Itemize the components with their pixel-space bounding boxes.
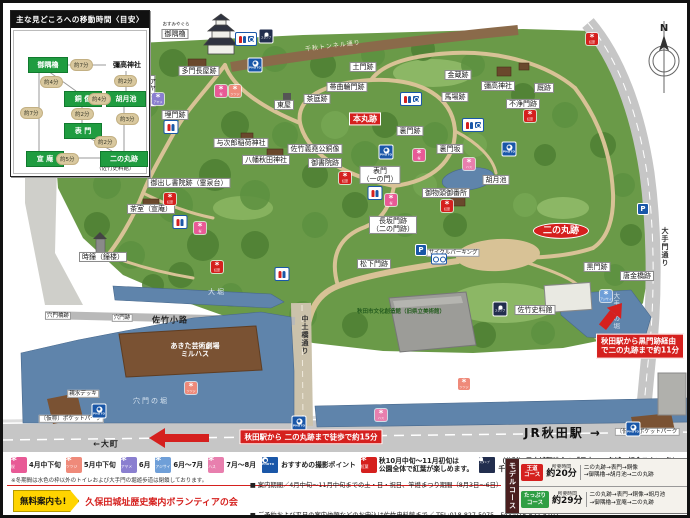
flow-time-label: 約2分 xyxy=(114,75,137,87)
flow-node-osumiyagura: 御隅櫓 xyxy=(28,57,68,73)
tsutsuji-icon: *ツツジ xyxy=(66,457,82,473)
flow-time-label: 約2分 xyxy=(94,136,117,148)
course-time: 所要時間約20分 xyxy=(546,465,581,480)
guide-info-bar: 無料案内も! 久保田城址歴史案内ボランティアの会 ■ 案内期間／4月中旬～11月… xyxy=(13,489,501,513)
flow-time-label: 約7分 xyxy=(20,107,43,119)
flower-caption: ハス xyxy=(208,465,224,469)
flow-node-ninomaru-ato: 二の丸跡 xyxy=(100,151,148,167)
flow-time-label: 約4分 xyxy=(40,76,63,88)
model-course-side-label: モデルコース xyxy=(506,459,519,513)
flow-node-iyataka-jinja: 彌高神社 xyxy=(106,59,148,71)
course-badge: 王道 コース xyxy=(521,464,543,481)
bloom-period-label: 6月 xyxy=(139,461,151,469)
travel-time-legend: 主な見どころへの移動時間〈目安〉 （佐竹史料館） 御隅櫓彌高神社銅 像胡月池表 … xyxy=(10,10,150,177)
bloom-legend-item: *ツツジ5月中下旬 xyxy=(66,457,116,473)
winter-note: ※冬期間は水色の枠以外のトイレおよび大手門の堀遊歩道は閉鎖しております。 xyxy=(11,476,207,484)
course-time-value: 約20分 xyxy=(546,470,577,480)
model-course-rows: 王道 コース所要時間約20分二の丸跡→表門→銅像 →御隅櫓→胡月池→二の丸跡たっ… xyxy=(519,459,690,513)
ajisai-icon: *アジサイ xyxy=(155,457,171,473)
flow-time-label: 約2分 xyxy=(71,108,94,120)
bloom-period-label: 6月～7月 xyxy=(173,461,203,469)
volunteer-org-name: 久保田城址歴史案内ボランティアの会 xyxy=(85,495,237,508)
flower-caption: 桜 xyxy=(11,465,27,469)
model-course-box: モデルコース 王道 コース所要時間約20分二の丸跡→表門→銅像 →御隅櫓→胡月池… xyxy=(505,458,690,514)
flow-node-kogetsu-ike: 胡月池 xyxy=(106,91,146,107)
flow-time-label: 約5分 xyxy=(56,153,79,165)
travel-time-title: 主な見どころへの移動時間〈目安〉 xyxy=(11,11,149,28)
course-route: 二の丸跡→表門→銅像 →御隅櫓→胡月池→二の丸跡 xyxy=(584,465,654,480)
bloom-legend-item: *桜4月中下旬 xyxy=(11,457,61,473)
sakura-icon: *桜 xyxy=(11,457,27,473)
course-time-value: 約29分 xyxy=(552,497,583,507)
ayame-icon: *アヤメ xyxy=(121,457,137,473)
flow-time-label: 約4分 xyxy=(88,93,111,105)
flow-time-label: 約3分 xyxy=(116,113,139,125)
bloom-legend-item: *アヤメ6月 xyxy=(121,457,151,473)
course-time: 所要時間約29分 xyxy=(552,492,587,507)
course-row: 王道 コース所要時間約20分二の丸跡→表門→銅像 →御隅櫓→胡月池→二の丸跡 xyxy=(519,459,690,487)
free-guide-badge: 無料案内も! xyxy=(13,490,79,512)
course-route: 二の丸跡→表門→銅像→胡月池 →御隅櫓→宣庵→二の丸跡 xyxy=(590,492,666,507)
bloom-period-label: 4月中下旬 xyxy=(29,461,61,469)
flower-caption: アジサイ xyxy=(155,465,171,469)
compass-icon: N xyxy=(639,19,689,97)
course-row: たっぷり コース所要時間約29分二の丸跡→表門→銅像→胡月池 →御隅櫓→宣庵→二… xyxy=(519,487,690,514)
bloom-legend-item: *アジサイ6月～7月 xyxy=(155,457,203,473)
map-area: おすみやぐら御隅櫓多門長屋跡アヤメ園埋門跡土門跡帯曲輪門跡金蔵跡彌高神社馬場跡厩… xyxy=(3,3,690,458)
course-badge: たっぷり コース xyxy=(521,491,549,508)
park-map-sheet: おすみやぐら御隅櫓多門長屋跡アヤメ園埋門跡土門跡帯曲輪門跡金蔵跡彌高神社馬場跡厩… xyxy=(0,0,690,518)
flow-time-label: 約7分 xyxy=(70,59,93,71)
travel-time-flowchart: （佐竹史料館） 御隅櫓彌高神社銅 像胡月池表 門宣 庵二の丸跡約7分約4分約2分… xyxy=(13,30,147,174)
compass-n-label: N xyxy=(660,23,668,34)
flower-caption: ツツジ xyxy=(66,465,82,469)
legend-strip: *桜4月中下旬*ツツジ5月中下旬*アヤメ6月*アジサイ6月～7月*ハス7月～8月… xyxy=(3,452,690,515)
bloom-period-label: 5月中下旬 xyxy=(84,461,116,469)
hasu-icon: *ハス xyxy=(208,457,224,473)
flower-caption: アヤメ xyxy=(121,465,137,469)
